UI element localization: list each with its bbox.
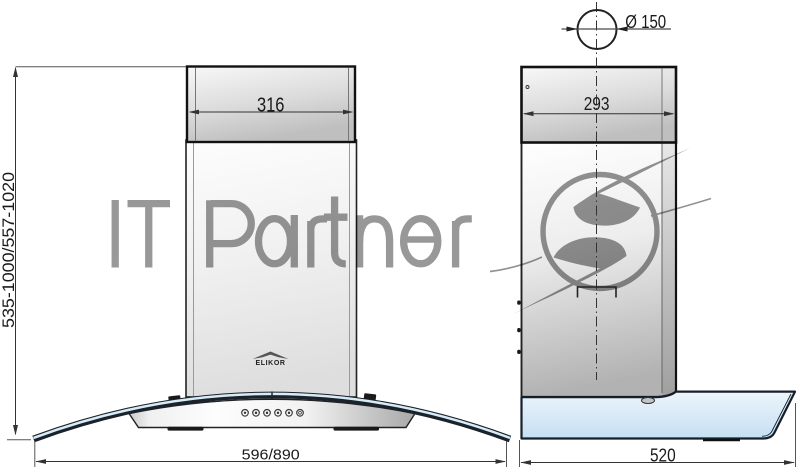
svg-text:Ø 150: Ø 150 — [625, 12, 666, 32]
svg-text:596/890: 596/890 — [242, 447, 300, 464]
svg-text:520: 520 — [650, 444, 676, 465]
svg-text:ELIKOR: ELIKOR — [255, 360, 285, 367]
svg-text:316: 316 — [257, 94, 285, 116]
svg-text:535-1000/557-1020: 535-1000/557-1020 — [0, 172, 18, 328]
